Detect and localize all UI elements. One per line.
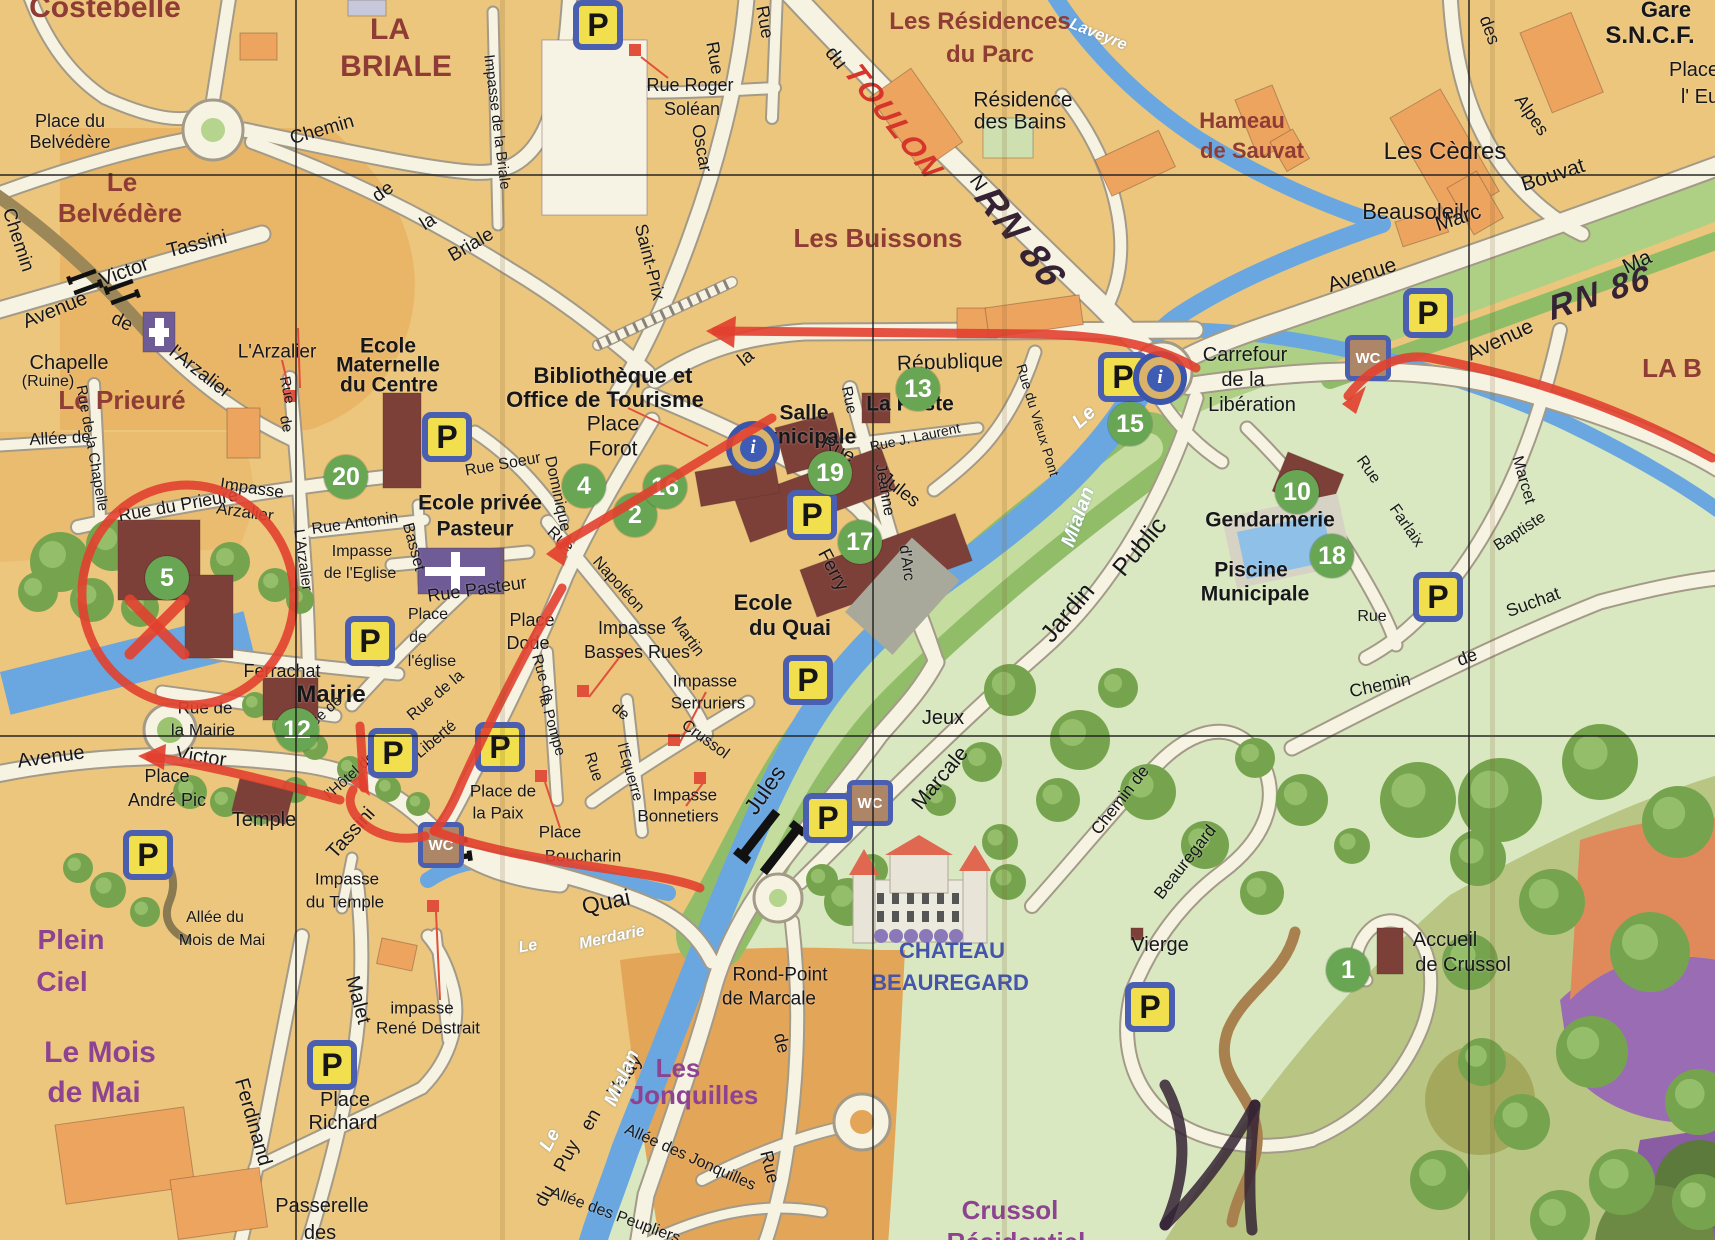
map-path [440,848,712,962]
tree [1450,830,1506,886]
map-label: des Bains [974,112,1066,133]
red-arrowhead [1342,386,1366,414]
map-label: Crussol [962,1197,1059,1223]
map-label: Avenue [1463,316,1536,365]
parking-icon[interactable]: P [1403,288,1453,338]
map-label: Avenue [1325,254,1399,296]
map-label: Carrefour [1203,345,1287,365]
tree-highlight [1567,1027,1599,1059]
map-label: Liberté [412,718,460,762]
map-label: Impasse [332,544,392,560]
red-route-annotation [434,831,700,888]
map-label: du [821,43,850,73]
area-zone [0,432,253,562]
parking-icon[interactable]: P [422,412,472,462]
map-label: Ferdinand [231,1076,275,1168]
map-label: Le Mois [44,1038,156,1068]
parking-icon[interactable]: P [787,490,837,540]
map-path [418,505,424,585]
tree [86,519,138,571]
map-label: Quai [580,886,632,919]
tree-highlight [77,585,97,605]
map-label: la [734,346,757,370]
map-label: des [304,1223,336,1240]
tree [1672,1174,1715,1230]
church-cross [149,328,169,337]
map-label: du Parc [946,43,1034,67]
poi-marker-square [577,685,589,697]
map-label: Bibliothèque et [534,365,693,387]
poi-number-16[interactable]: 16 [643,465,687,509]
poi-number-13[interactable]: 13 [896,367,940,411]
map-path [0,234,262,312]
map-label: Chapelle [30,353,109,373]
map-label: Les [656,1055,701,1081]
map-label: de Sauvat [1200,140,1304,162]
terrain-blob [1425,1045,1535,1155]
roundabout [834,1094,890,1150]
map-label: Ma [1619,246,1654,277]
parking-icon[interactable]: P [1125,982,1175,1032]
map-label: Belvédère [58,200,182,226]
map-path [28,0,105,98]
map-label: de [771,1031,793,1055]
map-label: du [532,1182,559,1210]
tree-highlight [1128,772,1153,797]
city-map[interactable]: CostebelleLABRIALELeBelvédèreLe PrieuréL… [0,0,1715,1240]
tree-highlight [1419,1159,1446,1186]
map-path [1188,371,1715,468]
poi-number-20[interactable]: 20 [324,455,368,499]
map-label: de [277,414,295,433]
poi-number-12[interactable]: 12 [275,708,319,752]
poi-number-19[interactable]: 19 [808,451,852,495]
tree [1240,871,1284,915]
map-path [475,432,562,520]
map-path [598,282,732,345]
map-label: Rue Pasteur [426,573,528,605]
map-label: Richard [309,1113,378,1133]
tree-highlight [1529,879,1559,909]
area-zone [620,948,905,1240]
map-label: Marcet [1509,454,1538,505]
map-label: Chemin [288,112,356,148]
map-path [105,98,205,119]
map-label: l'Arzalier [166,342,235,401]
map-label: Boucharin [545,848,622,865]
church-cross [451,552,460,590]
map-label: Place [320,1090,370,1110]
tree [90,872,126,908]
red-route-annotation [150,757,340,800]
map-label: Mialan [601,1047,642,1109]
roundabout-center [157,717,183,743]
map-path [588,88,775,93]
map-label: Passerelle [275,1196,368,1216]
map-path [428,860,668,893]
map-label: Maternelle [336,355,440,376]
map-label: Forot [588,439,637,460]
map-path [1062,95,1121,305]
map-label: Public [1109,513,1172,581]
map-path [627,700,642,832]
map-path [1032,732,1312,1146]
parking-icon[interactable]: P [783,655,833,705]
tree-highlight [379,780,391,792]
map-label: Municipale [1201,584,1310,605]
red-route-annotation [1348,357,1712,458]
map-label: de Crussol [1415,955,1511,975]
poi-number-17[interactable]: 17 [838,520,882,564]
map-label: Arzalier [215,500,274,525]
map-label: Rue [581,751,605,784]
roundabout-center [201,118,225,142]
tree [984,664,1036,716]
tree [1235,738,1275,778]
map-icons-layer: PPPPPPPPPPPPPPWCWCWCii205124216191713151… [0,0,1715,1240]
map-label: Oscar [689,123,715,173]
ink-scribble [1165,1105,1255,1225]
poi-marker-square [427,900,439,912]
map-label: Tassini [323,804,379,863]
map-label: Impasse de la Briale [481,54,512,191]
tree-highlight [1653,797,1685,829]
map-path [627,700,642,832]
map-label: Rue [1353,453,1383,486]
map-path [290,378,309,688]
water-strip [0,636,156,715]
map-label: la Pompe [536,692,568,757]
tree [924,784,956,816]
tree-highlight [95,877,111,893]
map-path [440,420,652,834]
map-label: Rue J. Laurent [869,421,962,454]
map-path [240,936,302,1240]
map-label: Rue [757,1149,782,1185]
map-label: Bonnetiers [637,808,718,825]
tree-highlight [39,541,66,568]
map-path [790,0,1166,370]
map-label: Jeux [922,708,964,728]
map-path [790,0,1166,370]
map-label: Soléan [664,100,720,118]
map-label: d'Arc [896,544,917,582]
map-path [1032,732,1312,1146]
label-leader-line [628,408,708,446]
map-label: Place du [35,112,105,130]
map-label: de la [1221,370,1264,390]
tree [286,586,314,614]
tree [882,896,922,936]
map-path [0,440,88,446]
building [1395,207,1449,247]
map-label: de [369,178,397,206]
map-label: Ecole [360,336,416,357]
label-leader-line [678,692,706,746]
area-zone [1560,956,1715,1122]
handwritten-annotation: RN 86 [967,182,1073,294]
map-path [0,140,183,196]
map-label: Marcale [908,743,972,814]
toilets-icon[interactable]: WC [1345,335,1391,381]
map-label: l'église [408,654,456,670]
paper-fold-crease [1002,0,1007,1240]
tree-highlight [178,780,193,795]
tree-highlight [888,902,906,920]
map-path [160,346,292,440]
ink-scribble [1165,1085,1182,1225]
chateau-illustration [849,835,991,943]
map-label: Place [587,414,640,435]
tourist-info-icon[interactable]: i [1133,351,1187,405]
tree [210,787,240,817]
tree-highlight [135,902,149,916]
map-path [712,448,1148,935]
tree [1380,762,1456,838]
map-label: l' Eu [1681,87,1715,107]
map-path [312,520,424,532]
map-path [105,98,205,119]
bridge-icon [733,803,807,881]
map-path [0,756,560,884]
map-label: Basset [399,521,427,572]
tree [1494,1094,1550,1150]
parking-icon[interactable]: P [1413,572,1463,622]
map-label: Jardin [1037,579,1100,647]
building [542,40,647,215]
poi-number-1[interactable]: 1 [1326,948,1370,992]
map-label: L'Arzalier [238,343,317,362]
tree-highlight [1573,735,1607,769]
map-path [638,986,714,1240]
map-label: Ecole [734,592,793,614]
map-label: Allée des Peupliers [548,1185,682,1240]
map-label: Victor [97,254,152,290]
parking-icon[interactable]: P [123,830,173,880]
tree-highlight [1284,782,1307,805]
red-arrowhead [706,316,736,348]
tree [1120,764,1176,820]
terrain-blob [1595,1185,1715,1240]
bridge-icon [103,276,141,308]
map-label: Napoléon [589,554,647,616]
map-label: Le Prieuré [58,387,185,413]
toilets-icon[interactable]: WC [418,822,464,868]
tree-highlight [24,578,42,596]
map-path [252,142,648,372]
map-label: Piscine [1214,560,1288,581]
tree-highlight [1247,878,1267,898]
poi-marker-square [535,770,547,782]
tree [1530,1190,1590,1240]
map-label: Rue de [529,653,557,704]
map-path [0,234,262,312]
map-label: Rue de la Chapelle [74,384,111,512]
map-label: Jules [877,469,924,511]
map-path [255,1088,422,1168]
building [1131,928,1143,940]
parking-icon[interactable]: P [573,0,623,50]
map-label: Belvédère [29,133,110,151]
poi-number-5[interactable]: 5 [145,556,189,600]
poi-number-15[interactable]: 15 [1108,402,1152,446]
map-label: de l'Eglise [324,566,396,582]
map-path [1190,195,1715,390]
tree [1556,1016,1628,1088]
tree [337,756,363,782]
map-label: du Quai [749,617,831,639]
map-path [290,378,309,688]
map-path [94,384,100,522]
paper-fold-crease [500,0,505,1240]
map-path [845,428,978,444]
map-label: Hameau [1199,110,1285,132]
poi-number-10[interactable]: 10 [1275,470,1319,514]
tree-highlight [215,792,229,806]
tree-highlight [250,800,264,814]
poi-number-4[interactable]: 4 [562,464,606,508]
map-label: Avenue [16,742,86,771]
map-path [618,0,747,392]
map-label: Le [107,169,137,195]
map-path [252,142,648,372]
building [1390,89,1499,220]
map-label: Allée du [186,910,244,926]
tree-highlight [1450,942,1475,967]
tree [1410,1150,1470,1210]
water-strip [96,611,254,690]
map-path [772,0,777,118]
map-label: Rue [1357,609,1386,625]
map-path [418,505,424,585]
tourist-info-icon[interactable]: i [726,421,780,475]
roundabout-center [850,1110,874,1134]
map-label: Marc [1433,201,1484,235]
map-path [764,922,797,1240]
building [1270,129,1310,171]
map-path [548,522,706,734]
parking-icon[interactable]: P [307,1040,357,1090]
map-label: Les Cèdres [1384,140,1507,164]
map-label: Place [1669,60,1715,80]
map-path [772,0,777,118]
building [418,548,504,594]
red-route-annotation [350,790,425,838]
map-path [1312,921,1431,1140]
map-label: Gare [1641,0,1691,21]
tree [1036,778,1080,822]
tree [70,578,114,622]
map-label: l'Equerre [615,741,646,802]
map-path [548,522,706,734]
map-path [547,652,557,800]
tree [1610,912,1690,992]
tree-highlight [1188,828,1210,850]
map-label: de [608,700,632,724]
map-path [0,140,183,196]
tree-highlight [1502,1102,1527,1127]
tree [1589,1149,1655,1215]
map-path [598,282,732,345]
toilets-icon[interactable]: WC [847,780,893,826]
map-label: Chemin [1348,670,1412,701]
map-path [642,1208,822,1240]
tree [63,853,93,883]
map-path [244,0,570,172]
map-path [240,936,302,1240]
map-label: Saint-Prix [632,222,668,302]
map-label: Rue de la [405,668,468,724]
map-label: la [417,210,440,234]
roundabout [144,704,196,756]
map-path [28,0,105,98]
tree [1334,828,1370,864]
tree [130,897,160,927]
building [870,68,963,170]
map-label: Place [144,767,189,785]
map-label: Vierge [1131,935,1188,955]
tree [1050,710,1110,770]
map-label: en [577,1106,604,1134]
map-path [712,448,1148,935]
map-path [440,848,712,962]
map-path [1292,578,1715,748]
map-label: Le [1069,402,1100,432]
building [55,1107,195,1204]
map-label: Basses Rues [584,643,690,661]
map-path [213,0,230,100]
map-path [0,192,158,344]
parking-icon[interactable]: P [803,793,853,843]
map-path [702,1124,860,1180]
map-label: Ciel [36,968,87,996]
map-path [638,986,714,1240]
map-label: Martin [667,614,706,659]
grid-line-vertical [1468,0,1470,1240]
building [1520,12,1603,112]
map-label: Impasse [315,871,379,888]
map-label: André Pic [128,791,206,809]
area-zone [1162,775,1715,1240]
map-label: Allée des Jonquilles [622,1122,758,1194]
tree [406,792,430,816]
map-label: Tassini [165,227,229,261]
tree-highlight [246,696,258,708]
red-x-annotation [130,600,184,654]
tree-highlight [929,789,943,803]
map-path [255,1088,422,1168]
poi-marker-square [629,44,641,56]
map-label: Temple [232,810,296,830]
map-path [1180,330,1715,510]
map-path [1224,932,1295,1222]
map-label: Avenue [20,288,90,332]
building [348,0,386,16]
tree-highlight [1059,719,1086,746]
map-label: Laveyre [1067,16,1129,53]
map-path [422,936,456,1088]
tree-highlight [831,885,853,907]
map-label: Beauregard [1151,822,1219,902]
red-arrowhead [350,772,370,796]
map-label: Rue du Prieuré [117,486,239,525]
map-label: Chemin [0,206,37,274]
church-cross [425,567,485,576]
tree-highlight [1599,1159,1629,1189]
poi-number-18[interactable]: 18 [1310,534,1354,578]
map-path [493,12,498,225]
parking-icon[interactable]: P [345,616,395,666]
